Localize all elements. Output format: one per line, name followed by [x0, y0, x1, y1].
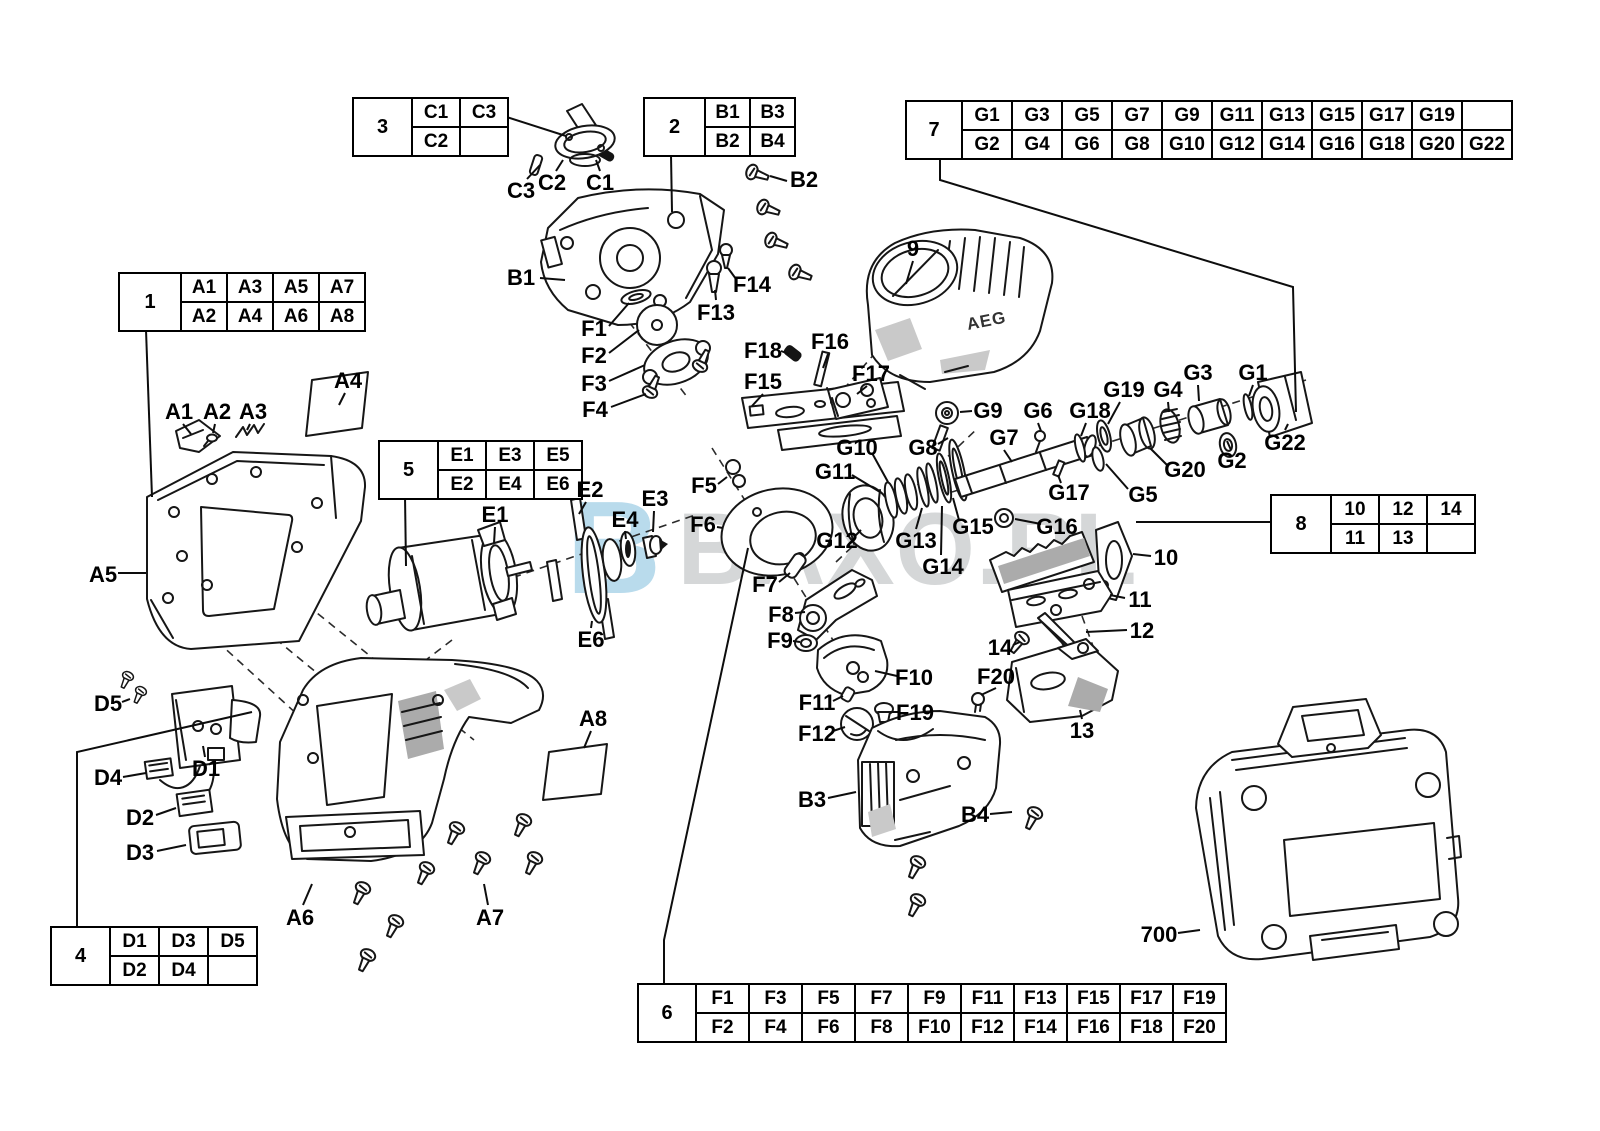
table-cell: F15: [1067, 984, 1120, 1013]
part-label-A3: A3: [239, 399, 267, 425]
table-cell: F1: [696, 984, 749, 1013]
part-label-G11: G11: [815, 459, 855, 485]
part-label-11: 11: [1128, 587, 1151, 613]
table-cell: G1: [962, 101, 1012, 130]
part-label-F8: F8: [768, 602, 794, 628]
table-cell: G18: [1362, 130, 1412, 159]
table-cell: 12: [1379, 495, 1427, 524]
table-group-number: 3: [353, 98, 412, 156]
table-cell: G15: [1312, 101, 1362, 130]
part-label-G13: G13: [895, 528, 937, 554]
table-cell: F11: [961, 984, 1014, 1013]
table-cell: F10: [908, 1013, 961, 1042]
table-cell: G10: [1162, 130, 1212, 159]
part-label-13: 13: [1070, 718, 1094, 744]
part-label-F13: F13: [697, 300, 735, 326]
table-cell: D3: [159, 927, 208, 956]
table-cell: F8: [855, 1013, 908, 1042]
table-cell: [460, 127, 508, 156]
table-cell: B4: [750, 127, 795, 156]
part-label-F7: F7: [752, 572, 778, 598]
part-label-B3: B3: [798, 787, 826, 813]
part-label-D1: D1: [192, 756, 220, 782]
parts-diagram-page: B BAXO.PL: [0, 0, 1600, 1131]
table-group-number: 5: [379, 441, 438, 499]
table-cell: A4: [227, 302, 273, 331]
table-cell: G5: [1062, 101, 1112, 130]
part-label-F5: F5: [691, 473, 717, 499]
part-label-14: 14: [988, 635, 1012, 661]
table-cell: C1: [412, 98, 460, 127]
part-label-G1: G1: [1238, 360, 1267, 386]
table-group-number: 8: [1271, 495, 1331, 553]
part-label-F19: F19: [896, 700, 934, 726]
part-label-D4: D4: [94, 765, 122, 791]
part-label-A7: A7: [476, 905, 504, 931]
table-cell: A8: [319, 302, 365, 331]
ref-table-8: 81012141113: [1270, 494, 1476, 554]
part-label-F6: F6: [690, 512, 716, 538]
table-cell: E3: [486, 441, 534, 470]
part-label-F1: F1: [581, 316, 607, 342]
part-label-G16: G16: [1036, 514, 1078, 540]
table-cell: F19: [1173, 984, 1226, 1013]
table-cell: F7: [855, 984, 908, 1013]
part-label-G7: G7: [989, 425, 1018, 451]
part-label-C1: C1: [586, 170, 614, 196]
table-cell: E4: [486, 470, 534, 499]
ref-table-4: 4D1D3D5D2D4: [50, 926, 258, 986]
part-label-F20: F20: [977, 664, 1015, 690]
table-cell: G9: [1162, 101, 1212, 130]
table-group-number: 6: [638, 984, 696, 1042]
part-label-F11: F11: [799, 690, 836, 716]
part-label-E2: E2: [577, 477, 604, 503]
table-cell: F6: [802, 1013, 855, 1042]
table-cell: E2: [438, 470, 486, 499]
table-cell: E6: [534, 470, 582, 499]
part-label-G5: G5: [1128, 482, 1157, 508]
part-label-C3: C3: [507, 178, 535, 204]
part-label-B1: B1: [507, 265, 535, 291]
table-group-number: 7: [906, 101, 962, 159]
part-label-G14: G14: [922, 554, 964, 580]
table-cell: G22: [1462, 130, 1512, 159]
table-cell: B2: [705, 127, 750, 156]
part-label-A8: A8: [579, 706, 607, 732]
table-cell: G2: [962, 130, 1012, 159]
table-cell: G4: [1012, 130, 1062, 159]
table-group-number: 2: [644, 98, 705, 156]
ref-table-5: 5E1E3E5E2E4E6: [378, 440, 583, 500]
table-cell: G16: [1312, 130, 1362, 159]
part-label-G17: G17: [1048, 480, 1090, 506]
part-label-B2: B2: [790, 167, 818, 193]
part-label-E6: E6: [578, 627, 605, 653]
table-cell: [1462, 101, 1512, 130]
part-label-G9: G9: [973, 398, 1002, 424]
ref-table-7: 7G1G3G5G7G9G11G13G15G17G19G2G4G6G8G10G12…: [905, 100, 1513, 160]
table-cell: F14: [1014, 1013, 1067, 1042]
part-label-E3: E3: [642, 486, 669, 512]
table-cell: G14: [1262, 130, 1312, 159]
part-label-F15: F15: [744, 369, 782, 395]
part-label-F10: F10: [895, 665, 933, 691]
table-cell: G12: [1212, 130, 1262, 159]
part-label-G3: G3: [1183, 360, 1212, 386]
table-cell: F18: [1120, 1013, 1173, 1042]
part-label-G4: G4: [1153, 377, 1182, 403]
table-cell: F16: [1067, 1013, 1120, 1042]
part-label-F12: F12: [798, 721, 836, 747]
table-cell: F4: [749, 1013, 802, 1042]
table-cell: F12: [961, 1013, 1014, 1042]
table-cell: 14: [1427, 495, 1475, 524]
table-cell: A1: [181, 273, 227, 302]
table-cell: D1: [110, 927, 159, 956]
part-label-G10: G10: [836, 435, 878, 461]
part-label-F3: F3: [581, 371, 607, 397]
part-label-9: 9: [907, 236, 919, 262]
part-label-E4: E4: [612, 507, 639, 533]
part-label-A6: A6: [286, 905, 314, 931]
ref-table-1: 1A1A3A5A7A2A4A6A8: [118, 272, 366, 332]
table-cell: E1: [438, 441, 486, 470]
part-label-G19: G19: [1103, 377, 1145, 403]
table-cell: G13: [1262, 101, 1312, 130]
part-label-F2: F2: [581, 343, 607, 369]
table-cell: [208, 956, 257, 985]
part-label-700: 700: [1141, 922, 1178, 948]
part-label-F17: F17: [852, 361, 890, 387]
part-label-D3: D3: [126, 840, 154, 866]
table-cell: G17: [1362, 101, 1412, 130]
part-label-G2: G2: [1217, 448, 1246, 474]
table-cell: 13: [1379, 524, 1427, 553]
table-cell: B3: [750, 98, 795, 127]
ref-table-2: 2B1B3B2B4: [643, 97, 796, 157]
ref-table-3: 3C1C3C2: [352, 97, 509, 157]
table-cell: F17: [1120, 984, 1173, 1013]
table-cell: G8: [1112, 130, 1162, 159]
table-cell: A5: [273, 273, 319, 302]
part-label-A2: A2: [203, 399, 231, 425]
part-label-F4: F4: [582, 397, 608, 423]
table-cell: 11: [1331, 524, 1379, 553]
part-label-C2: C2: [538, 170, 566, 196]
table-cell: A7: [319, 273, 365, 302]
part-label-G12: G12: [816, 528, 858, 554]
part-label-A4: A4: [334, 368, 362, 394]
part-label-G22: G22: [1264, 430, 1306, 456]
part-label-B4: B4: [961, 802, 989, 828]
table-cell: F3: [749, 984, 802, 1013]
part-label-F18: F18: [744, 338, 782, 364]
table-cell: 10: [1331, 495, 1379, 524]
table-cell: C3: [460, 98, 508, 127]
table-cell: A2: [181, 302, 227, 331]
table-cell: F13: [1014, 984, 1067, 1013]
table-cell: G7: [1112, 101, 1162, 130]
part-label-G8: G8: [908, 435, 937, 461]
part-label-G6: G6: [1023, 398, 1052, 424]
part-label-F14: F14: [733, 272, 771, 298]
table-cell: A6: [273, 302, 319, 331]
table-cell: G19: [1412, 101, 1462, 130]
table-cell: C2: [412, 127, 460, 156]
table-cell: F5: [802, 984, 855, 1013]
part-label-10: 10: [1154, 545, 1178, 571]
annotation-layer: 1A1A3A5A7A2A4A6A83C1C3C22B1B3B2B47G1G3G5…: [0, 0, 1600, 1131]
table-cell: D5: [208, 927, 257, 956]
table-cell: G3: [1012, 101, 1062, 130]
part-label-E1: E1: [482, 502, 509, 528]
table-cell: [1427, 524, 1475, 553]
table-group-number: 4: [51, 927, 110, 985]
table-cell: B1: [705, 98, 750, 127]
part-label-F9: F9: [767, 628, 793, 654]
table-cell: F2: [696, 1013, 749, 1042]
table-cell: F20: [1173, 1013, 1226, 1042]
table-cell: G6: [1062, 130, 1112, 159]
table-cell: E5: [534, 441, 582, 470]
table-cell: D2: [110, 956, 159, 985]
part-label-12: 12: [1130, 618, 1154, 644]
table-cell: G11: [1212, 101, 1262, 130]
table-cell: F9: [908, 984, 961, 1013]
table-cell: A3: [227, 273, 273, 302]
part-label-G15: G15: [952, 514, 994, 540]
part-label-A1: A1: [165, 399, 193, 425]
table-group-number: 1: [119, 273, 181, 331]
part-label-F16: F16: [811, 329, 849, 355]
ref-table-6: 6F1F3F5F7F9F11F13F15F17F19F2F4F6F8F10F12…: [637, 983, 1227, 1043]
part-label-G20: G20: [1164, 457, 1206, 483]
part-label-D2: D2: [126, 805, 154, 831]
part-label-D5: D5: [94, 691, 122, 717]
table-cell: D4: [159, 956, 208, 985]
table-cell: G20: [1412, 130, 1462, 159]
part-label-A5: A5: [89, 562, 117, 588]
